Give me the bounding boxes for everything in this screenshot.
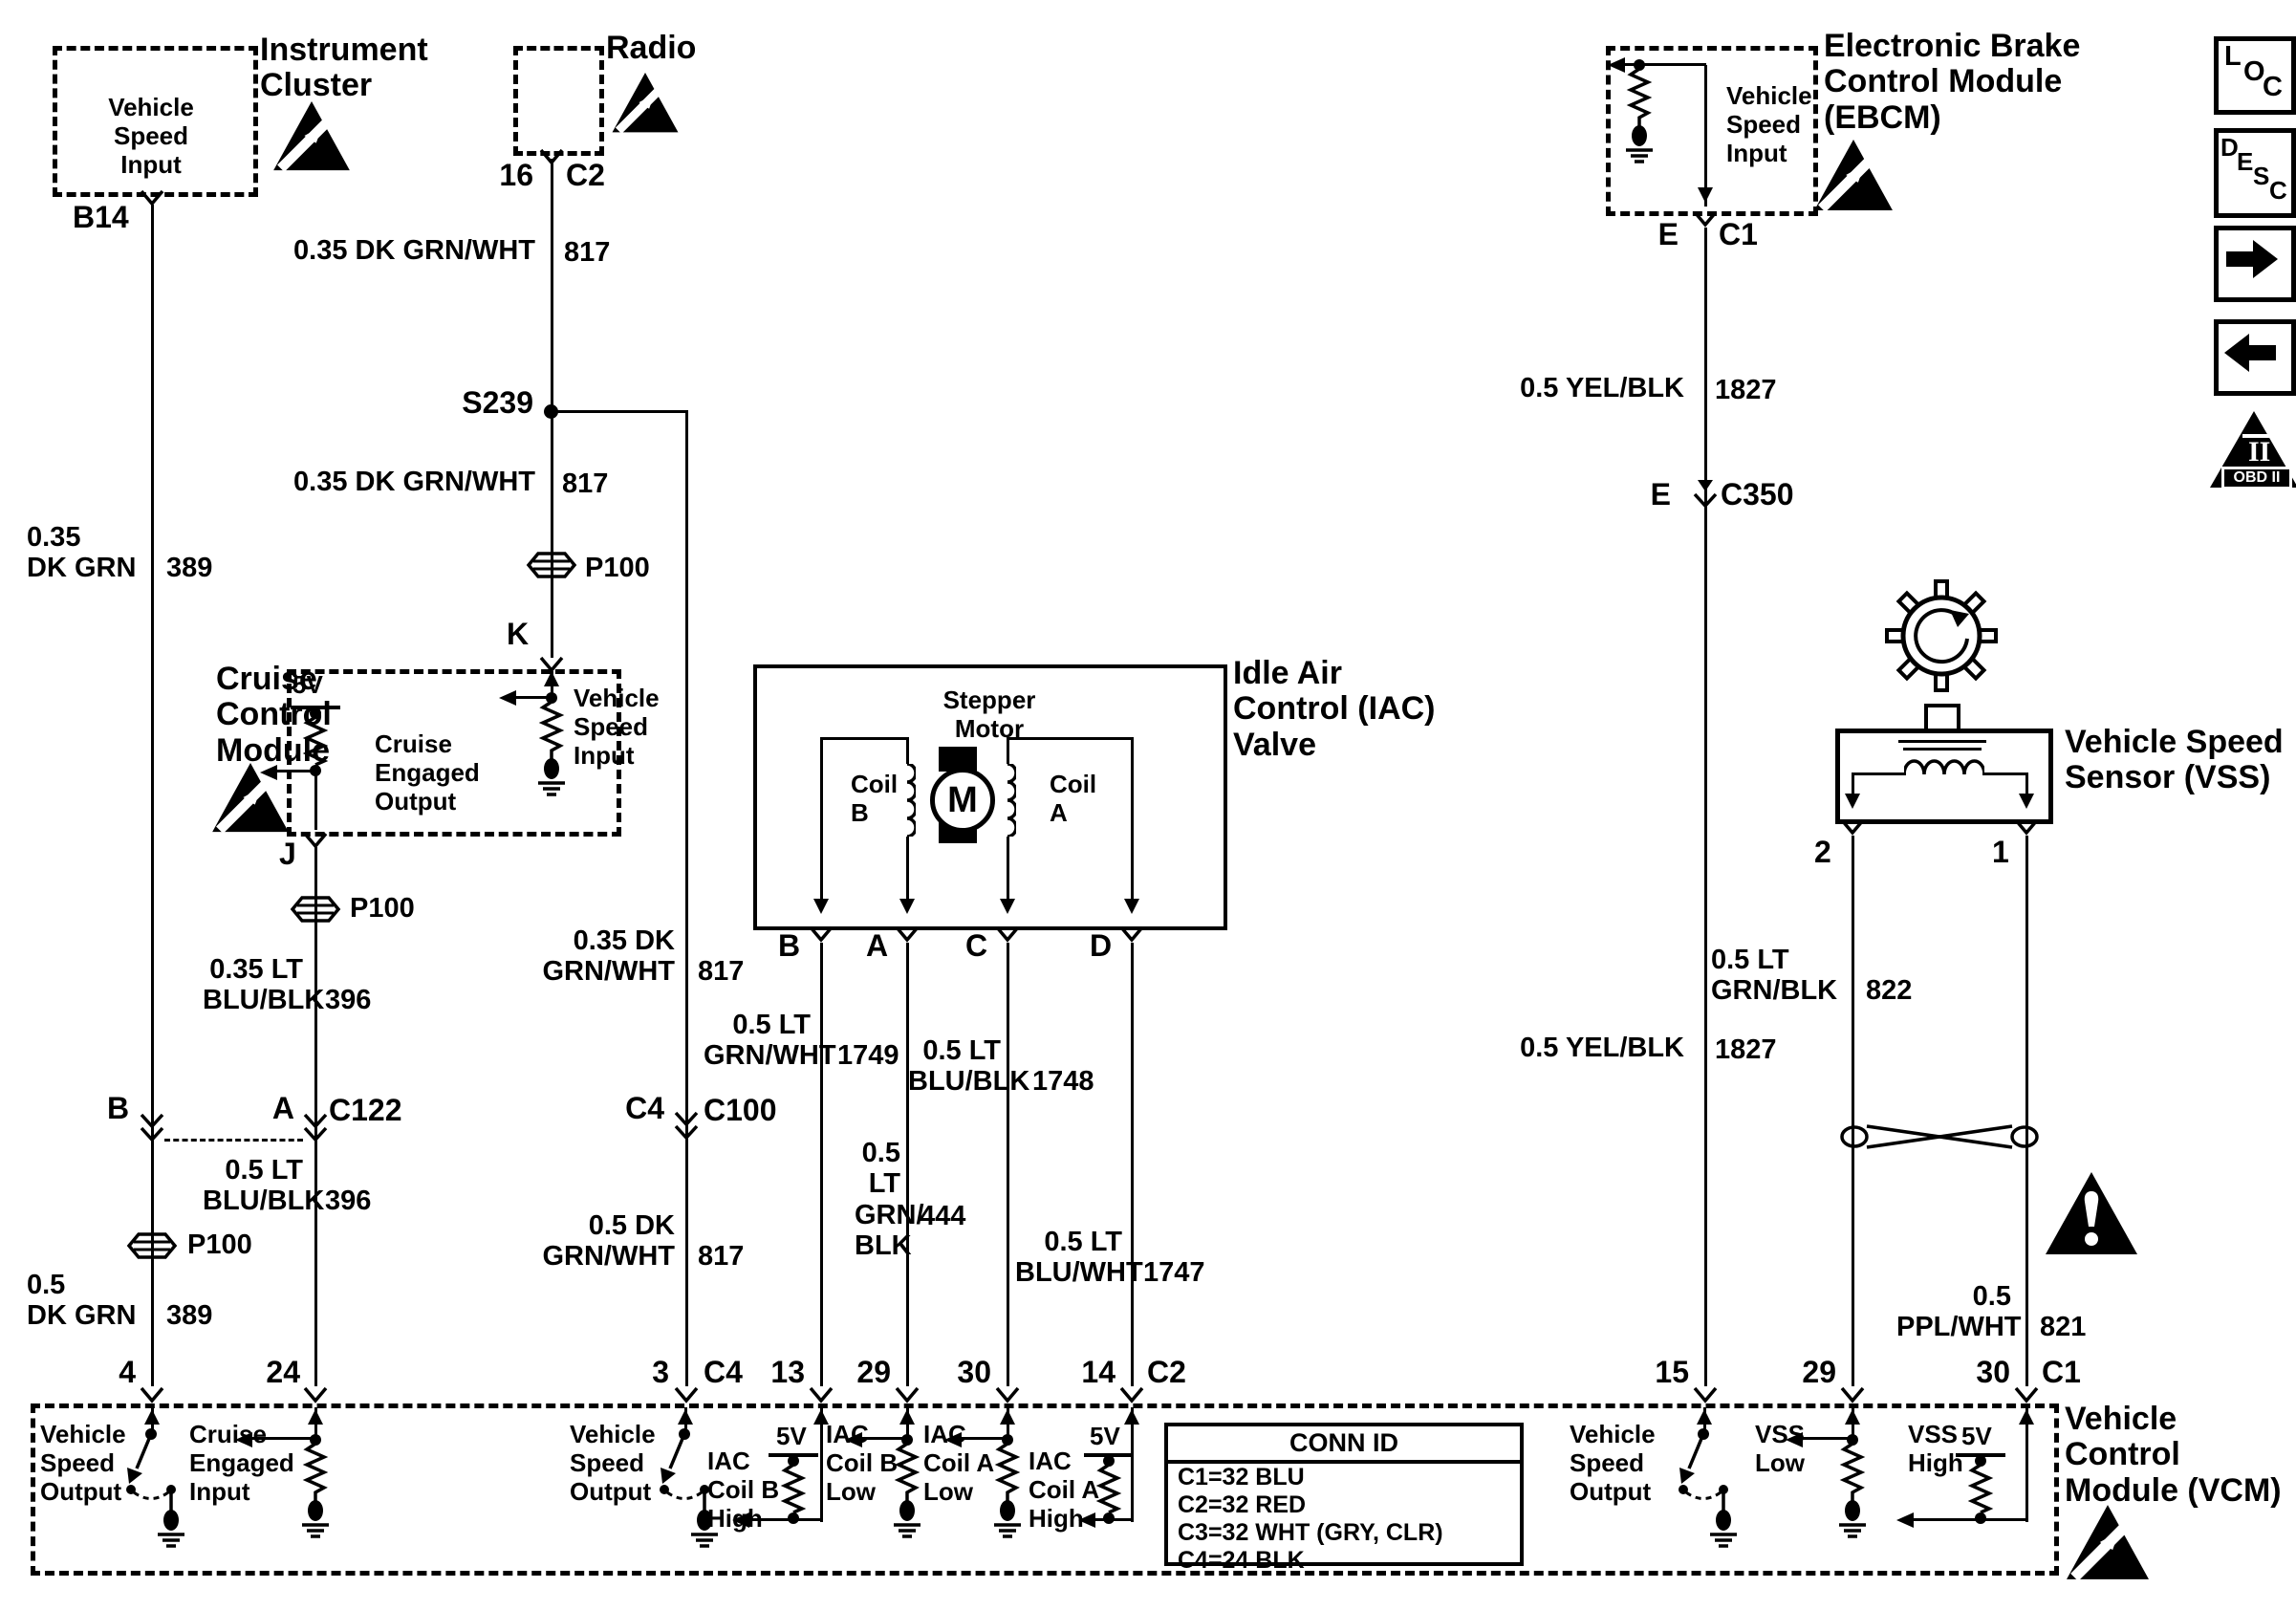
- connector-chevron-icon: [809, 1386, 834, 1403]
- connector-chevron-icon: [140, 1386, 164, 1403]
- wire-internal: [1982, 772, 2027, 775]
- arrow-up-icon: [678, 1409, 693, 1425]
- wire-821: [2025, 836, 2028, 1386]
- wire-1749-circuit: 1749: [837, 1040, 899, 1071]
- c350-name: C350: [1721, 478, 1794, 512]
- radio-conn: C2: [566, 159, 605, 193]
- desc-letter: S: [2253, 162, 2269, 191]
- pin-b14: B14: [73, 201, 129, 235]
- wire-internal: [906, 837, 909, 902]
- ebcm-pin-e: E: [1648, 218, 1679, 252]
- switch-to-ground-icon: [119, 1428, 187, 1551]
- splice-s239-label: S239: [438, 386, 533, 421]
- iac-coil-b-label: Coil B: [851, 771, 898, 828]
- pickup-line: [1898, 740, 1986, 743]
- wire-internal: [747, 1518, 822, 1521]
- c122-link-dashed: [164, 1139, 303, 1142]
- arrow-up-icon: [899, 1409, 915, 1425]
- arrow-down-icon: [2019, 794, 2034, 809]
- conn-id-title: CONN ID: [1168, 1426, 1520, 1464]
- connector-chevron-icon: [1119, 1386, 1144, 1403]
- vcm-pin-3: 3: [646, 1356, 669, 1390]
- loc-letter: L: [2224, 41, 2242, 73]
- wire-internal: [275, 770, 315, 772]
- switch-to-ground-icon: [1671, 1428, 1740, 1551]
- c122-name: C122: [329, 1094, 402, 1128]
- vcm-p13-5v: 5V: [776, 1423, 807, 1451]
- arrow-down-icon: [899, 899, 915, 914]
- connector-chevron-icon: [2014, 818, 2039, 836]
- next-page-button[interactable]: [2214, 226, 2296, 302]
- pickup-line: [1903, 748, 1982, 751]
- conn-id-row: C3=32 WHT (GRY, CLR): [1168, 1519, 1520, 1547]
- grommet-p100-label: P100: [187, 1229, 252, 1260]
- radio-pin: 16: [495, 159, 533, 193]
- wire-817b-label: 0.35 DK GRN/WHT: [277, 467, 535, 497]
- arrow-down-icon: [1000, 899, 1015, 914]
- wire-internal: [1704, 65, 1707, 207]
- wire-396-upper-label: 0.35 LT BLU/BLK: [203, 954, 303, 1016]
- ebcm-title: Electronic Brake Control Module (EBCM): [1824, 29, 2080, 136]
- desc-button[interactable]: D E S C: [2214, 128, 2296, 218]
- wiring-diagram: Vehicle Speed Input Instrument Cluster B…: [0, 0, 2296, 1610]
- iac-coil-a-label: Coil A: [1050, 771, 1096, 828]
- esd-icon: [612, 73, 679, 134]
- connector-chevron-icon: [674, 1386, 699, 1403]
- wire-817d-label: 0.5 DK GRN/WHT: [524, 1210, 675, 1273]
- arrow-left-icon: [235, 1432, 252, 1447]
- wire-internal: [820, 737, 823, 902]
- obdii-icon[interactable]: II OBD II: [2210, 411, 2296, 491]
- wire-817c-circuit: 817: [698, 956, 744, 987]
- reluctor-gear-icon: [1885, 579, 1998, 692]
- loc-button[interactable]: L O C: [2214, 36, 2296, 115]
- wire-internal: [1094, 1518, 1132, 1521]
- wire-internal: [2025, 1407, 2028, 1522]
- wire-817c-label: 0.35 DK GRN/WHT: [524, 925, 675, 988]
- connector-chevron-icon: [1840, 1386, 1865, 1403]
- wire-internal: [1912, 1518, 2026, 1521]
- wire-internal: [1007, 737, 1009, 764]
- desc-letter: E: [2237, 147, 2253, 177]
- wire-821-label: 0.5 PPL/WHT: [1896, 1281, 2011, 1343]
- wire-822: [1852, 836, 1854, 1386]
- wire-internal: [314, 773, 317, 830]
- connector-c100-icon: [674, 1111, 699, 1140]
- wire-444-label: 0.5 LT GRN/ BLK: [855, 1138, 900, 1262]
- wire-389-lower-circuit: 389: [166, 1300, 212, 1331]
- ebcm-function-label: Vehicle Speed Input: [1726, 82, 1812, 168]
- desc-letter: D: [2220, 133, 2239, 163]
- wire-1747-label: 0.5 LT BLU/WHT: [1015, 1227, 1122, 1289]
- 5v-resistor-icon: [1956, 1451, 2005, 1524]
- wire-1827: [1704, 228, 1707, 1386]
- obdii-label: OBD II: [2221, 467, 2292, 490]
- vcm-pin-13: 13: [761, 1356, 805, 1390]
- wire-1747: [1131, 943, 1134, 1386]
- vcm-p30c1-5v: 5V: [1961, 1423, 1992, 1451]
- wire-internal: [1852, 772, 1906, 775]
- vcm-title: Vehicle Control Module (VCM): [2065, 1402, 2282, 1509]
- arrow-down-icon: [1698, 187, 1713, 203]
- vcm-pin-4: 4: [113, 1356, 136, 1390]
- wire-444-circuit: 444: [920, 1201, 965, 1231]
- vcm-pin-30-c2: 30: [947, 1356, 991, 1390]
- arrow-up-icon: [1000, 1409, 1015, 1425]
- vss-title: Vehicle Speed Sensor (VSS): [2065, 725, 2284, 796]
- iac-valve-title: Idle Air Control (IAC) Valve: [1233, 656, 1436, 763]
- vcm-p3-label: Vehicle Speed Output: [570, 1421, 656, 1507]
- wire-internal: [1007, 737, 1133, 740]
- wire-internal: [906, 737, 909, 764]
- arrow-up-icon: [308, 1409, 323, 1425]
- grommet-p100-label: P100: [350, 893, 415, 924]
- loc-letter: C: [2263, 72, 2283, 103]
- c122-pin-a: A: [270, 1092, 294, 1126]
- vcm-pin-29-c1: 29: [1792, 1356, 1836, 1390]
- conn-id-row: C1=32 BLU: [1168, 1464, 1520, 1491]
- twisted-pair-icon: [1839, 1115, 2040, 1159]
- vcm-pin-14: 14: [1072, 1356, 1116, 1390]
- resistor-ground-icon: [1839, 1434, 1866, 1539]
- resistor-ground-icon: [994, 1434, 1021, 1539]
- grommet-p100-icon: [525, 551, 578, 579]
- vss-pin-1: 1: [1992, 836, 2009, 870]
- resistor-ground-icon: [894, 1434, 921, 1539]
- ebcm-conn-c1: C1: [1719, 218, 1758, 252]
- desc-letter: C: [2269, 176, 2287, 206]
- c350-pin: E: [1640, 478, 1671, 512]
- wire-1748-label: 0.5 LT BLU/BLK: [908, 1035, 1001, 1098]
- vcm-pin-29-c2: 29: [847, 1356, 891, 1390]
- arrow-up-icon: [1124, 1409, 1139, 1425]
- wire-396-lower-label: 0.5 LT BLU/BLK: [203, 1155, 303, 1217]
- vcm-conn-c2: C2: [1147, 1356, 1186, 1390]
- connector-chevron-icon: [1840, 818, 1865, 836]
- wire-817-cruise: [551, 413, 553, 658]
- vcm-p15-label: Vehicle Speed Output: [1570, 1421, 1656, 1507]
- connector-chevron-icon: [303, 1386, 328, 1403]
- connector-c122-pin-b-icon: [140, 1113, 164, 1142]
- connector-chevron-icon: [2014, 1386, 2039, 1403]
- vcm-p14-5v: 5V: [1090, 1423, 1120, 1451]
- cruise-speed-input-label: Vehicle Speed Input: [574, 685, 660, 771]
- wire-822-circuit: 822: [1866, 975, 1912, 1006]
- wire-1748-circuit: 1748: [1032, 1066, 1094, 1097]
- esd-icon: [1814, 140, 1893, 212]
- c100-name: C100: [704, 1094, 777, 1128]
- iac-pin-a: A: [866, 929, 888, 964]
- wire-817b-circuit: 817: [562, 468, 608, 499]
- esd-icon: [2067, 1505, 2149, 1581]
- wire-internal: [2025, 772, 2028, 795]
- connector-chevron-icon: [1693, 210, 1718, 228]
- pickup-coil-icon: [1904, 759, 1984, 790]
- wire-internal: [1007, 837, 1009, 902]
- instrument-cluster-function: Vehicle Speed Input: [84, 94, 218, 180]
- c100-pin: C4: [602, 1092, 664, 1126]
- vcm-conn-c4: C4: [704, 1356, 743, 1390]
- vcm-p4-label: Vehicle Speed Output: [40, 1421, 126, 1507]
- esd-icon: [212, 763, 289, 834]
- grommet-p100-icon: [125, 1231, 179, 1260]
- connector-chevron-icon: [809, 925, 834, 943]
- wire-817a-label: 0.35 DK GRN/WHT: [277, 235, 535, 266]
- resistor-ground-icon: [1626, 59, 1653, 164]
- connector-c122-pin-a-icon: [303, 1113, 328, 1142]
- wire-1749: [820, 943, 823, 1386]
- arrow-up-icon: [1697, 1409, 1712, 1425]
- cruise-pin-j: J: [279, 838, 296, 872]
- wire-internal: [820, 737, 908, 740]
- vcm-p29c1-label: VSS Low: [1755, 1421, 1805, 1478]
- resistor-ground-icon: [538, 692, 565, 797]
- wire-1827-lower-label: 0.5 YEL/BLK: [1491, 1033, 1684, 1063]
- coil-winding-icon: [999, 764, 1016, 837]
- grommet-p100-icon: [289, 895, 342, 924]
- cruise-pin-k: K: [507, 618, 529, 652]
- iac-pin-d: D: [1090, 929, 1112, 964]
- stepper-motor-icon: M: [930, 768, 995, 833]
- coil-winding-icon: [899, 764, 916, 837]
- wire-389: [151, 205, 154, 1386]
- connector-chevron-icon: [1119, 925, 1144, 943]
- iac-stepper-label: Stepper Motor: [937, 686, 1042, 744]
- resistor-ground-icon: [302, 1434, 329, 1539]
- cruise-engaged-output-label: Cruise Engaged Output: [375, 730, 480, 816]
- wire-internal: [1131, 737, 1134, 902]
- wire-1827-lower-circuit: 1827: [1715, 1034, 1777, 1065]
- wire-821-circuit: 821: [2040, 1312, 2086, 1342]
- wire-396-upper-circuit: 396: [325, 985, 371, 1015]
- vss-pin-2: 2: [1814, 836, 1831, 870]
- arrow-up-icon: [144, 1409, 160, 1425]
- wire-internal: [820, 1407, 823, 1522]
- connector-chevron-icon: [995, 925, 1020, 943]
- wire-389-lower-label: 0.5 DK GRN: [27, 1270, 149, 1332]
- vcm-conn-c1: C1: [2042, 1356, 2081, 1390]
- wire-817-radio: [551, 159, 553, 413]
- wire-internal: [1852, 772, 1854, 795]
- wire-branch-horizontal: [551, 410, 687, 413]
- wire-817a-circuit: 817: [564, 237, 610, 268]
- instrument-cluster-title: Instrument Cluster: [260, 33, 428, 104]
- arrow-left-icon: [2219, 324, 2284, 381]
- iac-pin-b: B: [778, 929, 800, 964]
- arrow-left-icon: [845, 1432, 862, 1447]
- wire-396-lower-circuit: 396: [325, 1186, 371, 1216]
- motor-m: M: [947, 780, 978, 821]
- arrow-left-icon: [260, 765, 277, 780]
- vcm-pin-24: 24: [256, 1356, 300, 1390]
- vcm-pin-15: 15: [1645, 1356, 1689, 1390]
- wire-389-upper-label: 0.35 DK GRN: [27, 522, 149, 584]
- connector-chevron-icon: [995, 1386, 1020, 1403]
- wire-817d-circuit: 817: [698, 1241, 744, 1272]
- prev-page-button[interactable]: [2214, 319, 2296, 396]
- wire-444: [906, 943, 909, 1386]
- conn-id-table: CONN ID C1=32 BLU C2=32 RED C3=32 WHT (G…: [1164, 1423, 1524, 1566]
- wire-1827-upper-label: 0.5 YEL/BLK: [1491, 373, 1684, 403]
- connector-chevron-icon: [895, 925, 920, 943]
- connector-chevron-icon: [895, 1386, 920, 1403]
- arrow-down-icon: [1124, 899, 1139, 914]
- wire-817-branch: [685, 410, 688, 1386]
- warning-triangle-icon: [2046, 1172, 2137, 1256]
- arrow-right-icon: [2219, 230, 2284, 288]
- arrow-up-icon: [1845, 1409, 1860, 1425]
- arrow-up-icon: [544, 671, 559, 686]
- 5v-resistor-icon: [769, 1451, 818, 1524]
- wire-1827-upper-circuit: 1827: [1715, 375, 1777, 405]
- arrow-up-icon: [2019, 1409, 2034, 1425]
- wire-389-upper-circuit: 389: [166, 553, 212, 583]
- arrow-down-icon: [1845, 794, 1860, 809]
- conn-id-row: C2=32 RED: [1168, 1491, 1520, 1519]
- vcm-pin-30-c1: 30: [1966, 1356, 2010, 1390]
- wire-1749-label: 0.5 LT GRN/WHT: [704, 1010, 811, 1072]
- cruise-5v-label: 5V: [292, 671, 323, 700]
- obdii-numeral: II: [2242, 434, 2276, 470]
- conn-id-row: C4=24 BLK: [1168, 1547, 1520, 1575]
- arrow-left-icon: [944, 1432, 962, 1447]
- radio-box: [513, 46, 604, 156]
- grommet-p100-label: P100: [585, 553, 650, 583]
- wire-822-label: 0.5 LT GRN/BLK: [1711, 945, 1830, 1007]
- iac-pin-c: C: [965, 929, 987, 964]
- arrow-left-icon: [1786, 1432, 1803, 1447]
- 5v-resistor-icon: [291, 704, 340, 776]
- wire-1748: [1007, 943, 1009, 1386]
- esd-icon: [273, 101, 350, 172]
- connector-chevron-icon: [1693, 1386, 1718, 1403]
- arrow-down-icon: [813, 899, 829, 914]
- wire-1747-circuit: 1747: [1143, 1257, 1205, 1288]
- c122-pin-b: B: [107, 1092, 129, 1126]
- radio-title: Radio: [606, 31, 696, 66]
- connector-c350-icon: [1693, 480, 1718, 509]
